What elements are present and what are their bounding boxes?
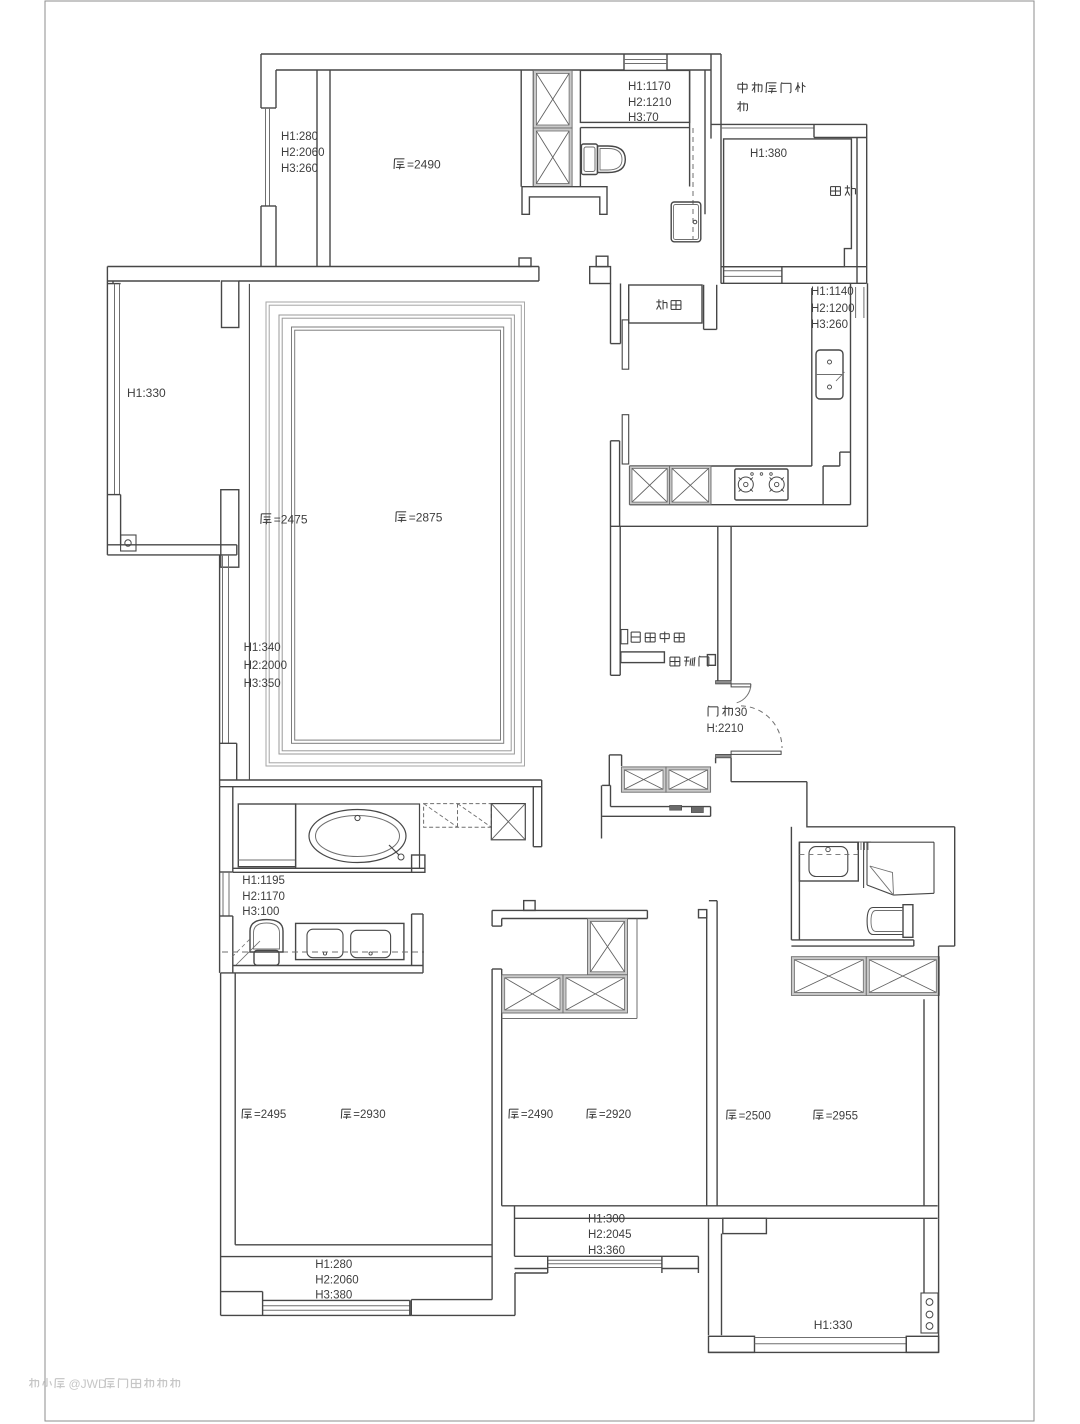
svg-text:=2475: =2475 [274, 513, 308, 527]
svg-text:=2490: =2490 [407, 158, 441, 172]
svg-text:H3:100: H3:100 [242, 906, 279, 918]
svg-text:H3:380: H3:380 [315, 1290, 352, 1302]
svg-text:H1:340: H1:340 [244, 642, 281, 654]
svg-text:@JWD: @JWD [69, 1377, 108, 1391]
svg-text:H2:1210: H2:1210 [628, 97, 671, 109]
svg-text:=2875: =2875 [409, 511, 443, 525]
svg-text:H2:2060: H2:2060 [315, 1275, 358, 1287]
svg-text:H2:1170: H2:1170 [242, 891, 285, 903]
svg-text:30: 30 [735, 707, 748, 719]
svg-text:=2490: =2490 [521, 1109, 553, 1121]
svg-text:H2:2000: H2:2000 [244, 660, 287, 672]
svg-text:=2955: =2955 [826, 1111, 858, 1123]
svg-text:=2930: =2930 [353, 1109, 385, 1121]
svg-text:H1:280: H1:280 [281, 131, 318, 143]
svg-text:H1:1170: H1:1170 [628, 81, 671, 93]
svg-text:H3:360: H3:360 [588, 1245, 625, 1257]
svg-text:=2920: =2920 [599, 1109, 631, 1121]
svg-text:=2500: =2500 [739, 1111, 771, 1123]
svg-text:H1:380: H1:380 [750, 148, 787, 160]
svg-text:H3:350: H3:350 [244, 678, 281, 690]
svg-text:H1:330: H1:330 [814, 1318, 853, 1332]
svg-text:H1:1195: H1:1195 [242, 875, 285, 887]
svg-text:H1:1140: H1:1140 [811, 286, 854, 298]
svg-text:H2:2060: H2:2060 [281, 147, 324, 159]
svg-text:H1:280: H1:280 [315, 1259, 352, 1271]
svg-text:H3:260: H3:260 [281, 163, 318, 175]
svg-text:=2495: =2495 [254, 1109, 286, 1121]
svg-text:H:2210: H:2210 [707, 723, 744, 735]
svg-text:H3:260: H3:260 [811, 319, 848, 331]
svg-text:H2:2045: H2:2045 [588, 1229, 631, 1241]
svg-text:H1:330: H1:330 [127, 386, 166, 400]
svg-text:H2:1200: H2:1200 [811, 303, 854, 315]
svg-text:H3:70: H3:70 [628, 112, 659, 124]
svg-text:H1:300: H1:300 [588, 1214, 625, 1226]
